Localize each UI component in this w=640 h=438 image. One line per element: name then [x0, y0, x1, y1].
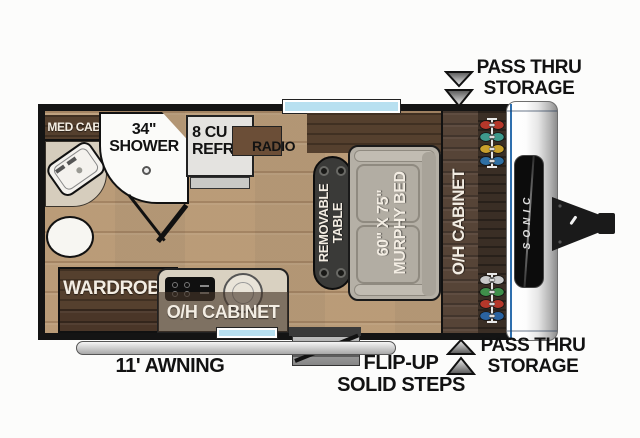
toilet [46, 216, 94, 258]
radio-label: RADIO [252, 139, 295, 154]
kitchen-oh-cabinet-label: O/H CABINET [167, 303, 280, 322]
burner [184, 282, 190, 288]
front-oh-cabinet-label: O/H CABINET [450, 167, 470, 277]
brand-logo: SONIC [522, 166, 536, 276]
burner [172, 282, 178, 288]
refrigerator-base [190, 177, 250, 189]
bed-backrest [422, 152, 436, 296]
storage-rack-icon [479, 270, 505, 326]
cooktop-detail [200, 285, 209, 287]
awning-label: 11' AWNING [100, 356, 240, 377]
bottom-wall-window [217, 328, 277, 338]
pass-thru-arrow-up-icon [446, 338, 476, 378]
front-cap-bottom-trim [507, 330, 557, 332]
top-wall-window [283, 100, 400, 113]
storage-rack-icon [479, 115, 505, 171]
front-cap-accent-stripe [510, 104, 512, 338]
med-cab-label: MED CAB [45, 115, 103, 139]
murphy-bed-label: 60" X 75" MURPHY BED [376, 148, 416, 298]
trailer-hitch [552, 194, 616, 254]
floorplan-page: { "brand": "SONIC", "labels": { "med_cab… [0, 0, 640, 438]
front-cap-top-trim [507, 110, 557, 112]
pass-thru-storage-top-label: PASS THRU STORAGE [470, 58, 588, 100]
removable-table-label: REMOVABLE TABLE [317, 163, 347, 283]
kitchen-oh-cabinet: O/H CABINET [158, 292, 288, 332]
entry-door-threshold [289, 327, 361, 336]
shower-label: SHOWER [101, 139, 187, 156]
shower-drain [142, 166, 151, 175]
med-cab: MED CAB [45, 115, 105, 141]
pass-thru-storage-bottom-label: PASS THRU STORAGE [474, 336, 592, 378]
